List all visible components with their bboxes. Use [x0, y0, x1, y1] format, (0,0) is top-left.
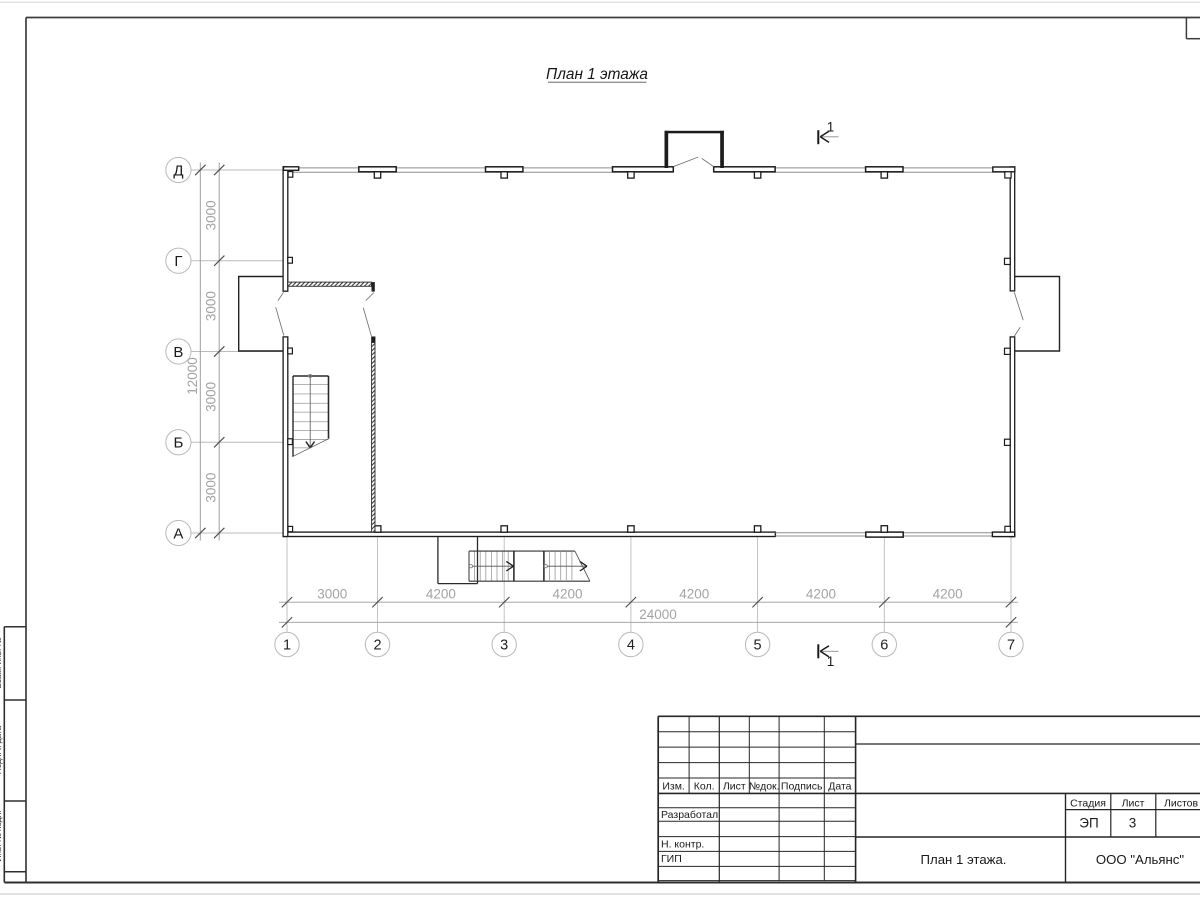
svg-text:№док.: №док. [749, 781, 780, 793]
svg-text:В: В [173, 344, 183, 361]
svg-text:24000: 24000 [639, 607, 677, 622]
svg-text:3: 3 [1129, 816, 1137, 831]
svg-text:Подпись: Подпись [781, 781, 823, 793]
svg-text:4200: 4200 [933, 587, 963, 602]
svg-text:Дата: Дата [828, 781, 851, 793]
svg-text:Лист: Лист [1122, 797, 1145, 809]
svg-text:4200: 4200 [553, 587, 583, 602]
svg-text:ЭП: ЭП [1079, 816, 1098, 831]
svg-text:4: 4 [627, 638, 635, 654]
svg-text:2: 2 [373, 638, 381, 654]
svg-text:1: 1 [827, 120, 835, 135]
svg-text:Инв. № подл.: Инв. № подл. [0, 811, 3, 862]
svg-text:А: А [173, 525, 183, 542]
svg-text:3000: 3000 [204, 200, 219, 230]
svg-text:Г: Г [174, 253, 182, 270]
svg-text:Б: Б [173, 435, 183, 452]
svg-text:3000: 3000 [317, 587, 347, 602]
svg-text:4200: 4200 [806, 587, 836, 602]
svg-text:План 1 этажа: План 1 этажа [546, 66, 648, 83]
svg-text:Подп. и дата: Подп. и дата [0, 725, 3, 774]
svg-text:3000: 3000 [204, 291, 219, 321]
svg-text:План 1 этажа.: План 1 этажа. [921, 852, 1007, 867]
svg-text:6: 6 [880, 638, 888, 654]
svg-text:Стадия: Стадия [1070, 797, 1106, 809]
svg-text:5: 5 [754, 638, 762, 654]
svg-text:1: 1 [283, 638, 291, 654]
svg-text:Н. контр.: Н. контр. [661, 838, 704, 850]
svg-text:4200: 4200 [679, 587, 709, 602]
svg-text:Кол.: Кол. [694, 781, 715, 793]
svg-text:Разработал: Разработал [661, 809, 718, 821]
svg-text:3000: 3000 [204, 382, 219, 412]
svg-text:Листов: Листов [1164, 797, 1199, 809]
svg-text:3: 3 [500, 638, 508, 654]
svg-text:12000: 12000 [185, 357, 200, 395]
svg-text:Д: Д [173, 162, 183, 179]
svg-text:Изм.: Изм. [662, 781, 685, 793]
svg-text:1: 1 [827, 654, 835, 669]
svg-text:3000: 3000 [204, 473, 219, 503]
svg-text:ООО "Альянс": ООО "Альянс" [1096, 852, 1184, 867]
svg-text:4200: 4200 [426, 587, 456, 602]
svg-text:7: 7 [1007, 638, 1015, 654]
svg-text:Лист: Лист [723, 781, 746, 793]
svg-text:ГИП: ГИП [661, 853, 682, 865]
svg-text:Взам. инв. №: Взам. инв. № [0, 637, 3, 688]
